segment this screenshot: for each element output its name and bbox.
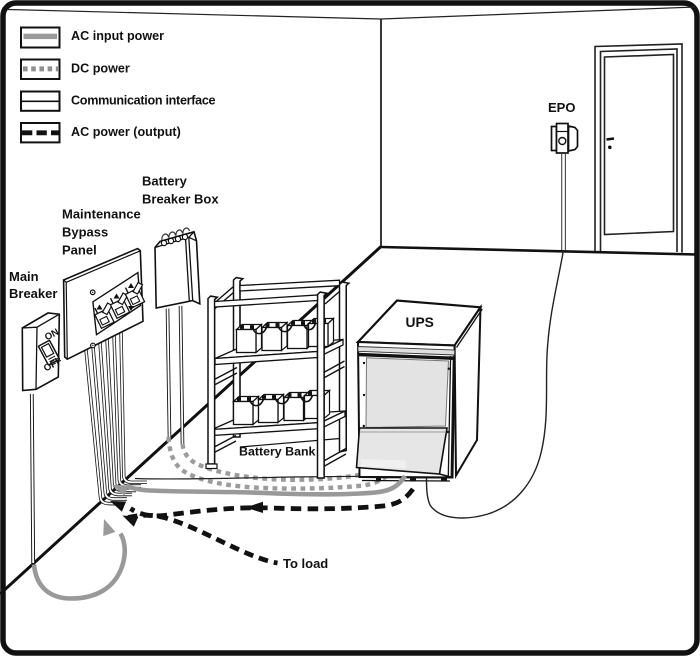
svg-text:Breaker Box: Breaker Box — [142, 192, 219, 207]
svg-text:Bypass: Bypass — [62, 225, 108, 240]
svg-text:Battery: Battery — [142, 174, 188, 189]
svg-text:Communication interface: Communication interface — [71, 94, 216, 108]
svg-text:Panel: Panel — [62, 243, 97, 258]
svg-text:Main: Main — [9, 269, 39, 284]
svg-text:Breaker: Breaker — [9, 286, 57, 301]
svg-text:EPO: EPO — [548, 100, 575, 115]
svg-text:DC power: DC power — [71, 62, 130, 76]
svg-text:To load: To load — [283, 556, 328, 571]
svg-text:AC power (output): AC power (output) — [71, 125, 181, 139]
svg-text:Maintenance: Maintenance — [62, 207, 141, 222]
svg-text:UPS: UPS — [406, 315, 434, 330]
svg-text:AC input power: AC input power — [71, 29, 164, 43]
svg-text:Battery Bank: Battery Bank — [239, 445, 316, 459]
